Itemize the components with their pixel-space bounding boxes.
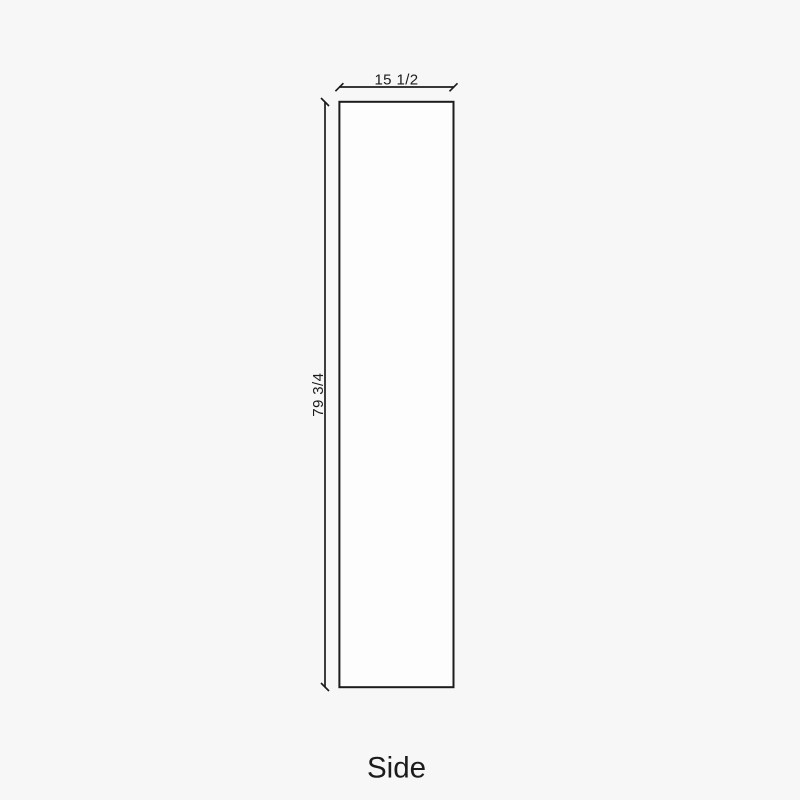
- svg-text:79 3/4: 79 3/4: [310, 373, 327, 417]
- svg-text:15 1/2: 15 1/2: [374, 72, 418, 89]
- svg-text:Side: Side: [367, 752, 426, 785]
